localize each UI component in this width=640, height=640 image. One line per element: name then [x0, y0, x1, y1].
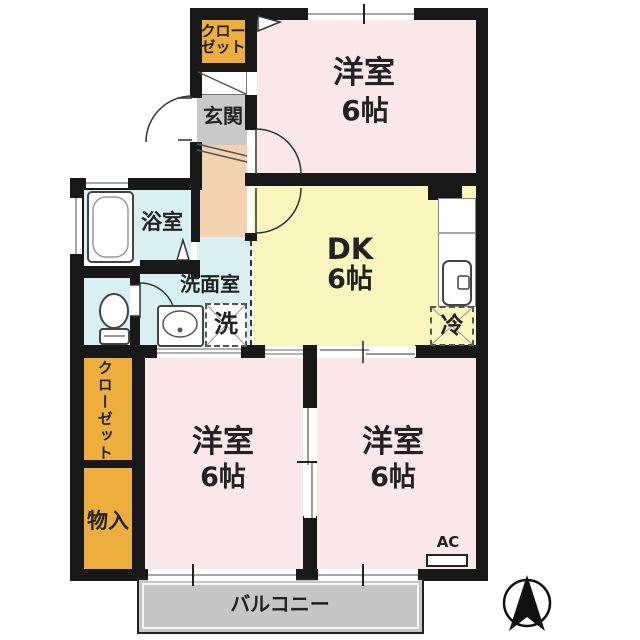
ac-unit-box: [426, 554, 468, 567]
wall-segment: [70, 178, 202, 190]
wall-segment: [130, 274, 140, 285]
label-br-bedroom-size: 6帖: [333, 464, 453, 492]
floor-plan: クロー ゼット 玄関 洋室 6帖 DK 6帖 浴室 洗面室 洗 冷 クローゼット…: [0, 0, 640, 640]
label-storage: 物入: [84, 510, 132, 532]
front-door-arc: [146, 96, 192, 142]
label-washroom: 洗面室: [168, 274, 252, 295]
closet-top-line2: ゼット: [200, 40, 246, 56]
wall-segment: [303, 345, 317, 358]
label-ac: AC: [428, 535, 468, 551]
label-entrance: 玄関: [200, 106, 246, 127]
wall-segment: [415, 345, 476, 358]
room-toilet: [84, 278, 130, 347]
label-washing-machine: 洗: [205, 312, 247, 337]
wall-segment: [303, 358, 317, 408]
label-bathroom: 浴室: [134, 211, 190, 233]
label-bl-bedroom-size: 6帖: [163, 464, 283, 492]
label-top-bedroom-size: 6帖: [305, 96, 425, 125]
label-dk-name: DK: [300, 234, 400, 264]
wall-segment: [303, 516, 317, 569]
wall-segment: [476, 8, 488, 581]
wall-segment: [190, 8, 488, 20]
wall-segment: [418, 569, 488, 581]
wall-segment: [70, 178, 84, 581]
wall-segment: [245, 233, 257, 241]
label-balcony: バルコニー: [180, 594, 380, 615]
wall-segment: [130, 316, 140, 347]
wall-segment: [132, 345, 145, 573]
wall-segment: [190, 63, 257, 72]
wall-segment: [245, 95, 257, 130]
wall-segment: [245, 173, 476, 186]
label-top-bedroom-name: 洋室: [304, 57, 424, 90]
hall-corridor: [197, 145, 247, 237]
kitchen-counter: [438, 198, 476, 307]
label-closet-left: クローゼット: [96, 360, 112, 462]
label-br-bedroom-name: 洋室: [333, 426, 453, 459]
label-refrigerator: 冷: [430, 314, 474, 338]
label-bl-bedroom-name: 洋室: [163, 426, 283, 459]
entrance-closet-door-box: [197, 71, 247, 95]
label-dk-size: 6帖: [300, 266, 400, 294]
label-closet-top: クロー ゼット: [200, 24, 246, 56]
sliding-door-washroom-bottom-left: [157, 347, 241, 356]
wall-segment: [191, 188, 200, 242]
wall-segment: [245, 8, 257, 63]
opening-dk-bottom-left: [265, 350, 303, 354]
north-arrow-icon: [504, 575, 550, 631]
